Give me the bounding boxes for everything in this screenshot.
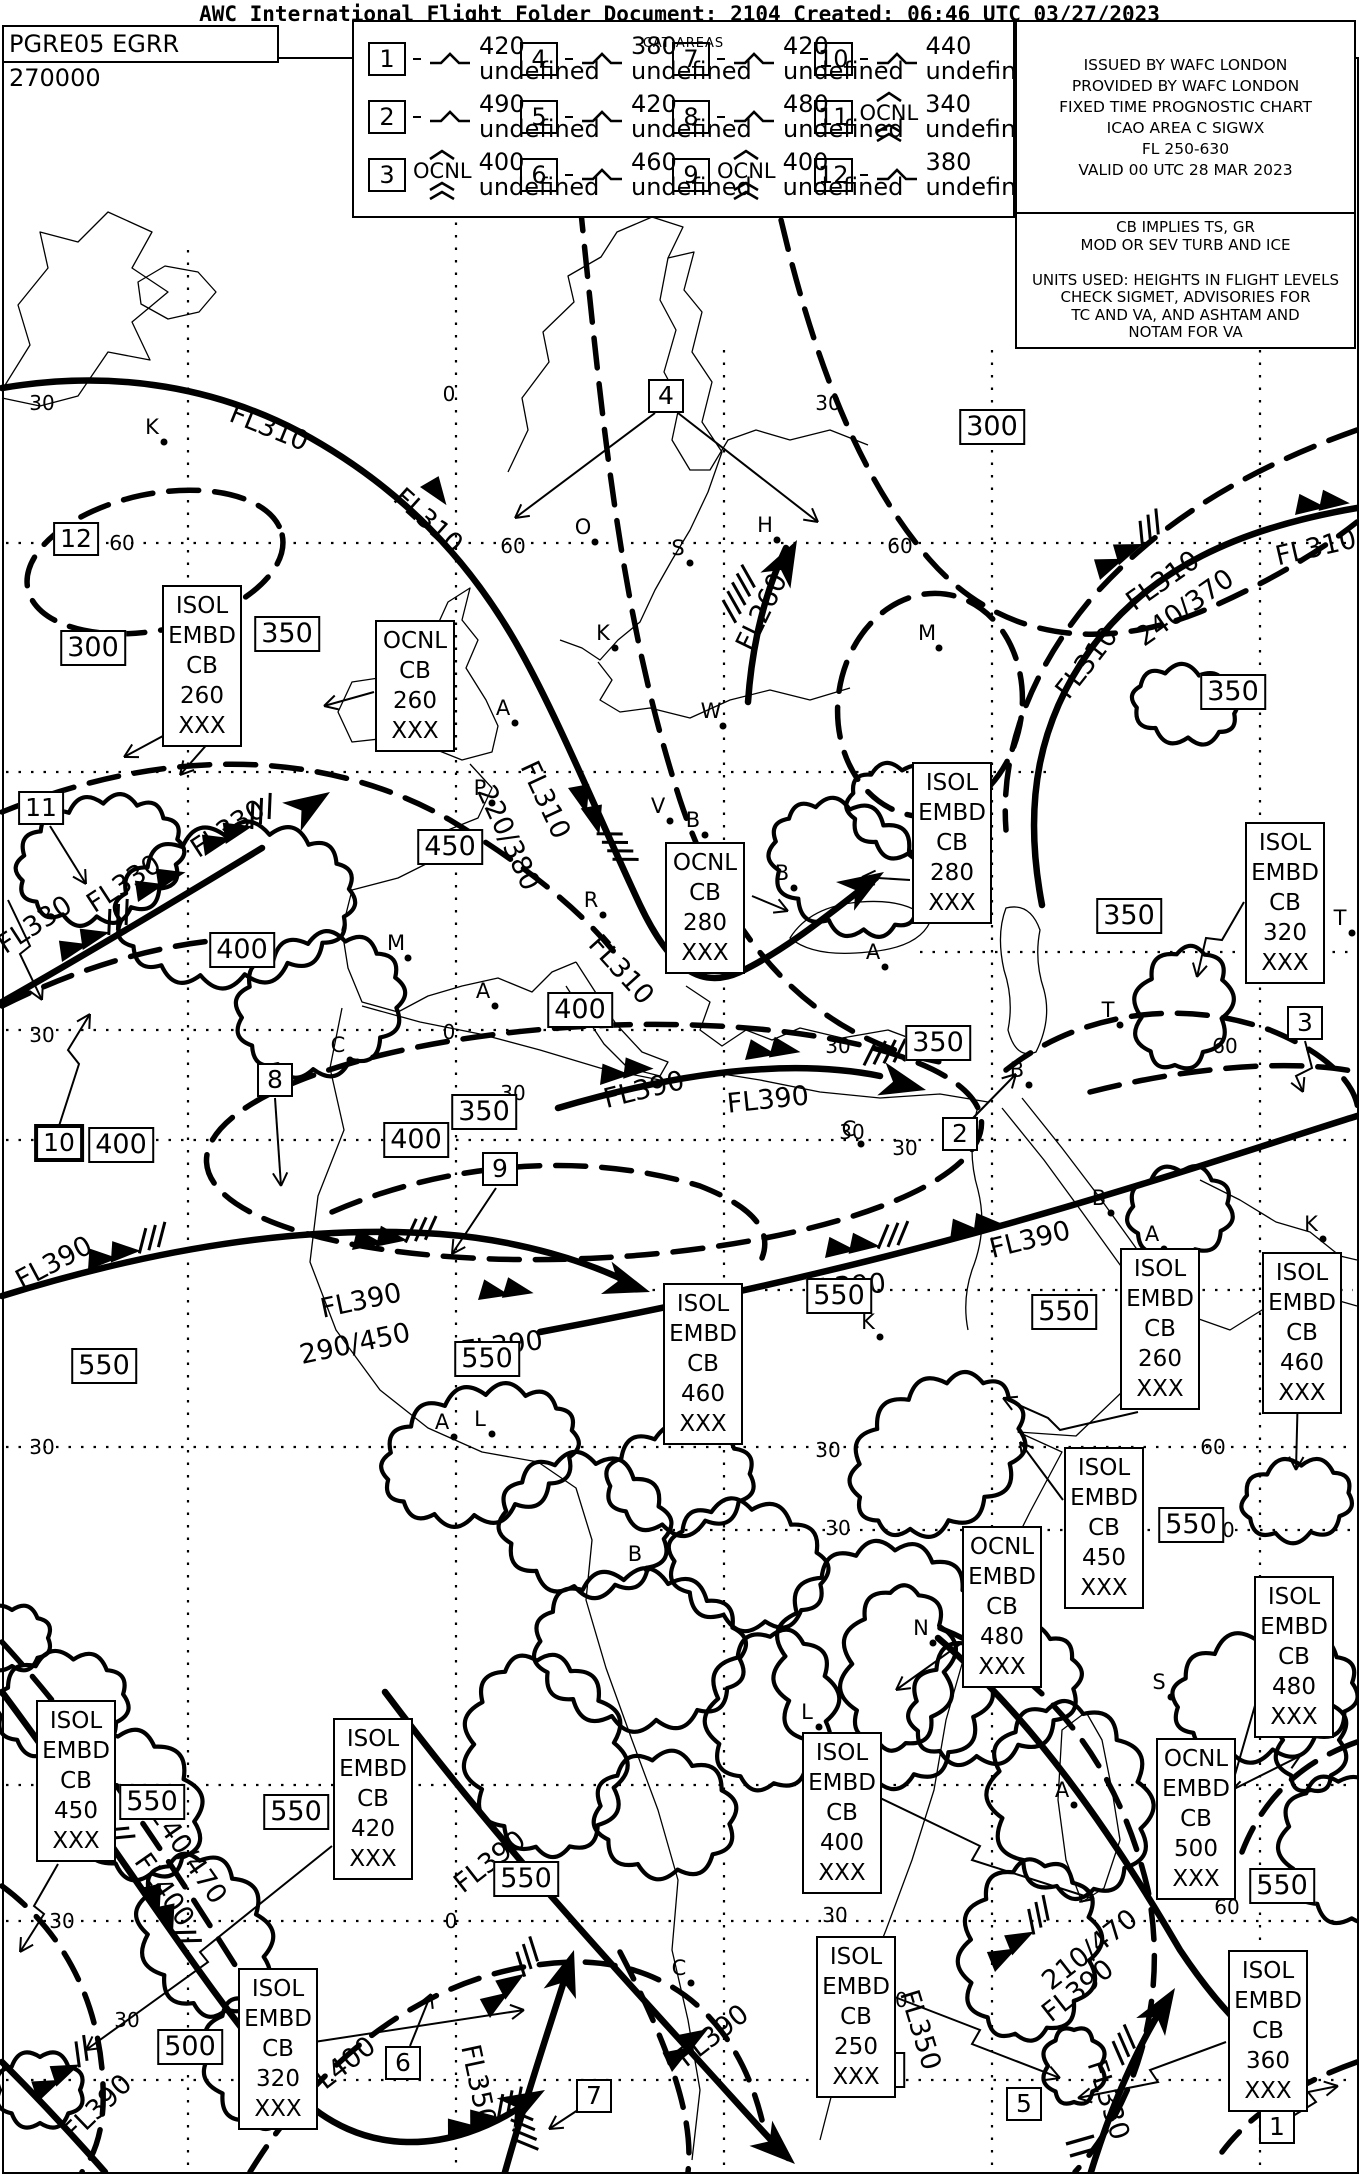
- cb-area-label-line: CB: [665, 1349, 741, 1379]
- legend-number: 6: [520, 158, 558, 192]
- cat-area-number: 2: [942, 1117, 978, 1151]
- flight-level-box: 550: [806, 1278, 872, 1314]
- severe-turbulence-icon: [427, 181, 457, 201]
- location-point-label: L: [474, 1407, 486, 1431]
- cb-area-label-line: EMBD: [335, 1754, 411, 1784]
- cb-area-label-line: EMBD: [914, 798, 990, 828]
- location-point-label: W: [701, 699, 722, 723]
- cb-area-label-line: XXX: [1066, 1573, 1142, 1603]
- location-point-label: B: [628, 1542, 642, 1566]
- location-point-label: C: [842, 1117, 857, 1141]
- cb-area-label-line: XXX: [377, 716, 453, 746]
- cat-area-number: 4: [648, 379, 684, 413]
- location-point-label: M: [918, 621, 936, 645]
- cb-area-label-line: EMBD: [1264, 1288, 1340, 1318]
- cb-area-label-line: 450: [1066, 1543, 1142, 1573]
- cb-area-label-line: CB: [240, 2034, 316, 2064]
- notes-box: CB IMPLIES TS, GRMOD OR SEV TURB AND ICE…: [1015, 212, 1356, 349]
- cb-area-label-line: XXX: [38, 1826, 114, 1856]
- cb-area-label-line: 250: [818, 2032, 894, 2062]
- moderate-turbulence-icon: [580, 166, 624, 184]
- graticule-label: 30: [114, 2008, 139, 2032]
- cb-area-label-line: 280: [667, 908, 743, 938]
- cb-area-label-line: CB: [1247, 888, 1323, 918]
- graticule-label: 60: [1200, 1435, 1225, 1459]
- cb-area-label: ISOLEMBDCB420XXX: [333, 1718, 413, 1880]
- cat-areas-legend: CAT AREAS 1420undefined4380undefined7420…: [352, 20, 1015, 218]
- bulletin-id-box: PGRE05 EGRR 270000: [2, 25, 279, 63]
- cb-area-label-line: 480: [1256, 1672, 1332, 1702]
- cat-area-number: 11: [18, 791, 64, 825]
- ocnl-label: OCNL: [717, 161, 776, 181]
- cb-area-label-line: XXX: [240, 2094, 316, 2124]
- moderate-turbulence-icon: [580, 108, 624, 126]
- cb-area-label-line: ISOL: [1264, 1258, 1340, 1288]
- graticule-label: 0: [445, 1909, 458, 1933]
- legend-item-11: 11OCNL340undefined: [814, 90, 1046, 144]
- issue-box-line: FIXED TIME PROGNOSTIC CHART: [1017, 97, 1354, 118]
- cb-area-label-line: CB: [1158, 1804, 1234, 1834]
- cb-area-label-line: CB: [1066, 1513, 1142, 1543]
- legend-number: 8: [672, 100, 710, 134]
- cb-area-label-line: EMBD: [164, 621, 240, 651]
- location-point-label: V: [651, 794, 665, 818]
- issue-box-line: ICAO AREA C SIGWX: [1017, 118, 1354, 139]
- cb-area-label-line: XXX: [964, 1652, 1040, 1682]
- cat-area-number: 9: [482, 1152, 518, 1186]
- cb-area-label-line: XXX: [1122, 1374, 1198, 1404]
- cb-area-label-line: ISOL: [1122, 1254, 1198, 1284]
- severe-turbulence-icon: [731, 181, 761, 201]
- moderate-turbulence-icon: [875, 166, 919, 184]
- cb-area-label-line: XXX: [914, 888, 990, 918]
- location-point-label: B: [1010, 1058, 1024, 1082]
- location-point-label: A: [476, 979, 490, 1003]
- cb-area-label-line: OCNL: [667, 848, 743, 878]
- issued-by-box: ISSUED BY WAFC LONDONPROVIDED BY WAFC LO…: [1015, 20, 1356, 216]
- cb-area-label-line: ISOL: [38, 1706, 114, 1736]
- location-point-label: T: [1102, 998, 1115, 1022]
- cb-area-label-line: EMBD: [38, 1736, 114, 1766]
- graticule-label: 30: [822, 1903, 847, 1927]
- cb-area-label-line: ISOL: [164, 591, 240, 621]
- flight-level-box: 400: [88, 1127, 154, 1163]
- cb-area-label-line: 400: [804, 1828, 880, 1858]
- location-point-label: T: [1334, 906, 1347, 930]
- ocnl-label: OCNL: [413, 161, 472, 181]
- cb-area-label-line: 320: [240, 2064, 316, 2094]
- cb-area-label: ISOLEMBDCB400XXX: [802, 1732, 882, 1894]
- notes-box-line: CHECK SIGMET, ADVISORIES FOR: [1017, 289, 1354, 307]
- cb-area-label-line: 320: [1247, 918, 1323, 948]
- notes-box-line: MOD OR SEV TURB AND ICE: [1017, 237, 1354, 255]
- cb-area-label-line: ISOL: [665, 1289, 741, 1319]
- cb-area-label-line: 260: [377, 686, 453, 716]
- cb-area-label-line: XXX: [804, 1858, 880, 1888]
- flight-level-box: 400: [383, 1122, 449, 1158]
- flight-level-box: 550: [1158, 1507, 1224, 1543]
- cb-area-label: ISOLEMBDCB360XXX: [1228, 1950, 1308, 2112]
- cb-area-label: ISOLEMBDCB250XXX: [816, 1936, 896, 2098]
- flight-level-box: 300: [959, 409, 1025, 445]
- flight-level-box: 550: [119, 1784, 185, 1820]
- cb-area-label-line: 480: [964, 1622, 1040, 1652]
- issue-box-line: FL 250-630: [1017, 139, 1354, 160]
- flight-level-box: 550: [1249, 1868, 1315, 1904]
- cb-area-label-line: CB: [1122, 1314, 1198, 1344]
- cb-area-label-line: EMBD: [240, 2004, 316, 2034]
- cb-area-label-line: CB: [818, 2002, 894, 2032]
- notes-box-line: [1017, 254, 1354, 272]
- location-point-label: B: [686, 808, 700, 832]
- issue-box-line: VALID 00 UTC 28 MAR 2023: [1017, 160, 1354, 181]
- notes-box-line: TC AND VA, AND ASHTAM AND: [1017, 307, 1354, 325]
- cb-area-label: ISOLEMBDCB320XXX: [238, 1968, 318, 2130]
- cb-area-label-line: EMBD: [1122, 1284, 1198, 1314]
- flight-level-box: 550: [263, 1794, 329, 1830]
- cb-area-label-line: XXX: [335, 1844, 411, 1874]
- cb-area-label-line: CB: [667, 878, 743, 908]
- cb-area-label-line: OCNL: [377, 626, 453, 656]
- graticule-label: 60: [109, 531, 134, 555]
- graticule-label: 30: [892, 1136, 917, 1160]
- moderate-turbulence-icon: [732, 50, 776, 68]
- cb-area-label: ISOLEMBDCB460XXX: [1262, 1252, 1342, 1414]
- cb-area-label-line: 420: [335, 1814, 411, 1844]
- cb-area-label-line: CB: [377, 656, 453, 686]
- sigwx-chart-page: AWC International Flight Folder Document…: [0, 0, 1359, 2174]
- legend-number: 11: [814, 100, 853, 134]
- cb-area-label-line: 450: [38, 1796, 114, 1826]
- flight-level-box: 550: [1031, 1294, 1097, 1330]
- cb-area-label: ISOLEMBDCB450XXX: [1064, 1447, 1144, 1609]
- location-point-label: L: [801, 1700, 813, 1724]
- legend-number: 2: [368, 100, 406, 134]
- cb-area-label-line: XXX: [1158, 1864, 1234, 1894]
- cb-area-label-line: ISOL: [1256, 1582, 1332, 1612]
- graticule-label: 60: [500, 534, 525, 558]
- legend-item-12: 12380undefined: [814, 148, 1046, 202]
- location-point-label: A: [435, 1410, 449, 1434]
- flight-level-box: 350: [905, 1025, 971, 1061]
- location-point-label: A: [1055, 1778, 1069, 1802]
- cb-area-label-line: 500: [1158, 1834, 1234, 1864]
- flight-level-box: 400: [547, 992, 613, 1028]
- notes-box-line: NOTAM FOR VA: [1017, 324, 1354, 342]
- location-point-label: H: [757, 513, 773, 537]
- location-point-label: A: [1145, 1222, 1159, 1246]
- moderate-turbulence-icon: [428, 50, 472, 68]
- cat-area-number: 1: [1259, 2110, 1295, 2144]
- cb-area-label: OCNLEMBDCB500XXX: [1156, 1738, 1236, 1900]
- cb-area-label-line: EMBD: [1230, 1986, 1306, 2016]
- issue-box-line: PROVIDED BY WAFC LONDON: [1017, 76, 1354, 97]
- cb-area-label: ISOLEMBDCB280XXX: [912, 762, 992, 924]
- cb-area-label-line: CB: [964, 1592, 1040, 1622]
- notes-box-line: UNITS USED: HEIGHTS IN FLIGHT LEVELS: [1017, 272, 1354, 290]
- cb-area-label-line: CB: [804, 1798, 880, 1828]
- moderate-turbulence-icon: [875, 50, 919, 68]
- location-point-label: C: [331, 1033, 346, 1057]
- cb-area-label-line: CB: [1256, 1642, 1332, 1672]
- cb-area-label-line: EMBD: [964, 1562, 1040, 1592]
- graticule-label: 60: [1212, 1034, 1237, 1058]
- location-point-label: C: [672, 1956, 687, 1980]
- flight-level-box: 450: [417, 829, 483, 865]
- location-point-label: S: [671, 536, 684, 560]
- cb-area-label-line: OCNL: [964, 1532, 1040, 1562]
- cb-area-label-line: 260: [164, 681, 240, 711]
- cb-area-label: ISOLEMBDCB320XXX: [1245, 822, 1325, 984]
- graticule-label: 30: [29, 1023, 54, 1047]
- cb-area-label-line: CB: [914, 828, 990, 858]
- cb-area-label-line: XXX: [164, 711, 240, 741]
- cb-area-label-line: XXX: [1256, 1702, 1332, 1732]
- ocnl-label: OCNL: [860, 103, 919, 123]
- graticule-label: 30: [815, 391, 840, 415]
- moderate-turbulence-icon: [580, 50, 624, 68]
- cb-area-label-line: XXX: [1230, 2076, 1306, 2106]
- cb-area-label: ISOLEMBDCB260XXX: [1120, 1248, 1200, 1410]
- cb-area-label: ISOLEMBDCB460XXX: [663, 1283, 743, 1445]
- cb-area-label-line: ISOL: [335, 1724, 411, 1754]
- location-point-label: K: [596, 621, 610, 645]
- location-point-label: O: [575, 515, 592, 539]
- cb-area-label-line: EMBD: [1066, 1483, 1142, 1513]
- legend-number: 9: [672, 158, 710, 192]
- cb-area-label-line: OCNL: [1158, 1744, 1234, 1774]
- cb-area-label-line: ISOL: [1247, 828, 1323, 858]
- legend-number: 5: [520, 100, 558, 134]
- cb-area-label-line: 260: [1122, 1344, 1198, 1374]
- cb-area-label-line: ISOL: [1066, 1453, 1142, 1483]
- cb-area-label-line: 360: [1230, 2046, 1306, 2076]
- flight-level-box: 400: [209, 932, 275, 968]
- flight-level-box: 500: [157, 2029, 223, 2065]
- location-point-label: A: [866, 940, 880, 964]
- cb-area-label-line: XXX: [667, 938, 743, 968]
- cat-area-number: 5: [1006, 2087, 1042, 2121]
- cb-area-label-line: CB: [1230, 2016, 1306, 2046]
- flight-level-box: 550: [493, 1861, 559, 1897]
- cat-area-number: 12: [53, 522, 99, 556]
- cb-area-label-line: 280: [914, 858, 990, 888]
- cb-area-label-line: CB: [164, 651, 240, 681]
- cat-area-number: 3: [1287, 1006, 1323, 1040]
- graticule-label: 30: [29, 1435, 54, 1459]
- graticule-label: 0: [443, 382, 456, 406]
- cb-area-label: OCNLCB280XXX: [665, 842, 745, 974]
- graticule-label: 30: [825, 1034, 850, 1058]
- location-point-label: K: [1304, 1212, 1318, 1236]
- notes-box-line: CB IMPLIES TS, GR: [1017, 219, 1354, 237]
- location-point-label: A: [496, 696, 510, 720]
- cb-area-label-line: ISOL: [240, 1974, 316, 2004]
- cb-area-label-line: EMBD: [1247, 858, 1323, 888]
- cat-area-number: 8: [257, 1063, 293, 1097]
- cb-area-label-line: EMBD: [1158, 1774, 1234, 1804]
- cat-areas-title: CAT AREAS: [354, 36, 1013, 51]
- cb-area-label-line: EMBD: [818, 1972, 894, 2002]
- severe-turbulence-icon: [874, 123, 904, 143]
- legend-number: 12: [814, 158, 853, 192]
- cb-area-label-line: CB: [335, 1784, 411, 1814]
- legend-number: 3: [368, 158, 406, 192]
- cb-area-label-line: ISOL: [818, 1942, 894, 1972]
- flight-level-box: 350: [254, 616, 320, 652]
- cat-area-number: 10: [34, 1124, 84, 1162]
- cat-area-number: 6: [385, 2046, 421, 2080]
- location-point-label: K: [145, 415, 159, 439]
- cb-area-label-line: EMBD: [804, 1768, 880, 1798]
- location-point-label: R: [584, 888, 599, 912]
- cb-area-label: OCNLEMBDCB480XXX: [962, 1526, 1042, 1688]
- moderate-turbulence-icon: [428, 108, 472, 126]
- cb-area-label-line: XXX: [665, 1409, 741, 1439]
- cb-area-label-line: 460: [1264, 1348, 1340, 1378]
- moderate-turbulence-icon: [732, 108, 776, 126]
- graticule-label: 0: [443, 1020, 456, 1044]
- cb-area-label-line: CB: [1264, 1318, 1340, 1348]
- cb-area-label: ISOLEMBDCB450XXX: [36, 1700, 116, 1862]
- graticule-label: 30: [825, 1516, 850, 1540]
- cb-area-label-line: EMBD: [665, 1319, 741, 1349]
- cat-area-number: 7: [576, 2079, 612, 2113]
- location-point-label: P: [474, 776, 487, 800]
- graticule-label: 30: [49, 1909, 74, 1933]
- cb-area-label-line: 460: [665, 1379, 741, 1409]
- cb-area-label-line: ISOL: [1230, 1956, 1306, 1986]
- flight-level-box: 550: [454, 1341, 520, 1377]
- cb-area-label-line: XXX: [1247, 948, 1323, 978]
- cb-area-label-line: EMBD: [1256, 1612, 1332, 1642]
- flight-level-box: 550: [71, 1348, 137, 1384]
- cb-area-label-line: XXX: [818, 2062, 894, 2092]
- location-point-label: S: [1152, 1670, 1165, 1694]
- cb-area-label-line: CB: [38, 1766, 114, 1796]
- location-point-label: B: [1092, 1186, 1106, 1210]
- cb-area-label-line: XXX: [1264, 1378, 1340, 1408]
- flight-level-box: 350: [1096, 898, 1162, 934]
- location-point-label: N: [913, 1616, 929, 1640]
- graticule-label: 30: [815, 1438, 840, 1462]
- cb-area-label-line: ISOL: [804, 1738, 880, 1768]
- location-point-label: M: [387, 931, 405, 955]
- location-point-label: B: [775, 861, 789, 885]
- flight-level-box: 350: [1200, 674, 1266, 710]
- flight-level-box: 350: [451, 1094, 517, 1130]
- flight-level-box: 300: [60, 630, 126, 666]
- cb-area-label: ISOLEMBDCB480XXX: [1254, 1576, 1334, 1738]
- graticule-label: 30: [29, 391, 54, 415]
- issue-box-line: ISSUED BY WAFC LONDON: [1017, 55, 1354, 76]
- cb-area-label: ISOLEMBDCB260XXX: [162, 585, 242, 747]
- graticule-label: 60: [887, 534, 912, 558]
- cb-area-label: OCNLCB260XXX: [375, 620, 455, 752]
- cb-area-label-line: ISOL: [914, 768, 990, 798]
